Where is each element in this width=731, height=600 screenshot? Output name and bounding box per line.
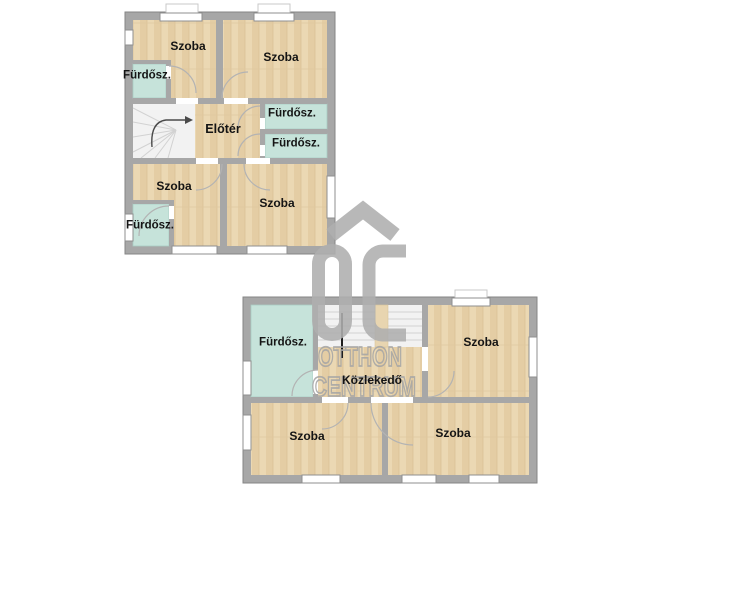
lower-label-furdo: Fürdősz. (259, 337, 307, 349)
upper-label-szoba-top-right: Szoba (263, 51, 298, 63)
upper-label-furdo-left: Fürdősz. (123, 70, 171, 82)
upper-label-szoba-top-left: Szoba (170, 40, 205, 52)
lower-label-kozlekedo: Közlekedő (342, 374, 402, 386)
floorplan-page: OTTHON CENTRUM Szoba Szoba Fürdősz. Előt… (0, 0, 731, 600)
watermark-line1: OTTHON (318, 341, 402, 372)
upper-label-furdo-right-2: Fürdősz. (272, 138, 320, 150)
lower-room-szoba-top-right (428, 305, 529, 397)
upper-label-szoba-bottom-left: Szoba (156, 180, 191, 192)
lower-label-szoba-bottom-left: Szoba (289, 430, 324, 442)
upper-label-furdo-bottom-left: Fürdősz. (126, 220, 174, 232)
lower-label-szoba-top-right: Szoba (463, 336, 498, 348)
lower-label-szoba-bottom-right: Szoba (435, 427, 470, 439)
upper-label-furdo-right-1: Fürdősz. (268, 108, 316, 120)
lower-bath (251, 305, 313, 397)
floorplan-drawing: OTTHON CENTRUM (0, 0, 731, 600)
upper-label-eloter: Előtér (205, 123, 240, 136)
upper-label-szoba-bottom-right: Szoba (259, 197, 294, 209)
roof-chevron-icon (331, 210, 395, 235)
upper-staircase (133, 104, 195, 158)
